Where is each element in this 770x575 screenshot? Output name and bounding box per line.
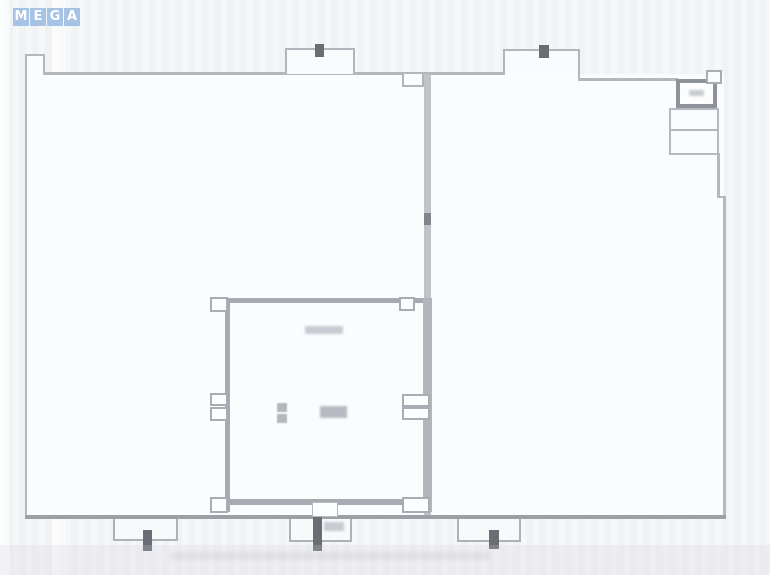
- inner-marker-bottom-left: [210, 497, 228, 513]
- watermark-tile-g: G: [47, 8, 63, 26]
- bay-window-top-left-tick: [315, 44, 324, 57]
- dividing-wall-top-notch: [402, 74, 424, 87]
- inner-marker-left-mid-lower: [210, 407, 228, 421]
- inner-marker-bottom-right: [402, 497, 430, 513]
- inner-marker-right-mid-upper: [402, 394, 430, 407]
- inner-marker-left-mid-upper: [210, 393, 228, 406]
- utility-shaft-divider: [669, 129, 719, 131]
- inner-marker-top-left: [210, 297, 228, 312]
- wall-right-upper: [717, 153, 720, 198]
- wall-left: [25, 54, 27, 518]
- inner-room-wall-top: [228, 298, 428, 303]
- vent-shaft-label-smudge: [689, 90, 704, 96]
- scan-bottom-shade: [0, 545, 770, 575]
- watermark-tile-a: A: [64, 8, 80, 26]
- utility-shaft: [669, 108, 719, 155]
- inner-room-label-smudge-top: [305, 326, 343, 334]
- scan-bottom-smudge: [170, 552, 490, 560]
- inner-marker-top-right: [399, 297, 415, 311]
- inner-room-label-smudge-center: [320, 406, 347, 418]
- watermark-tile-e: E: [30, 8, 46, 26]
- wall-topleft-bump-top: [25, 54, 45, 56]
- plan-interior-fill: [26, 74, 724, 516]
- wall-topleft-bump-right: [43, 54, 45, 73]
- inner-marker-right-mid-lower: [402, 407, 430, 420]
- wall-right-lower: [723, 196, 726, 518]
- mega-watermark: M E G A: [13, 8, 80, 26]
- inner-room-mark-center-lower: [277, 414, 287, 423]
- bay-window-top-right-tick: [539, 45, 549, 58]
- vent-corner-square: [706, 70, 722, 84]
- scan-edge-highlight: [0, 0, 10, 575]
- plan-interior-bump-fill: [26, 55, 44, 75]
- balcony-bottom-mid-label-smudge: [324, 522, 344, 531]
- inner-room-mark-center-upper: [277, 403, 287, 412]
- watermark-tile-m: M: [13, 8, 29, 26]
- wall-top-right-section: [578, 78, 678, 81]
- floor-plan-scan: M E G A: [0, 0, 770, 575]
- wall-top-left-section: [43, 72, 432, 75]
- inner-room-door-opening: [312, 502, 338, 517]
- dividing-wall-dark-segment: [424, 213, 431, 225]
